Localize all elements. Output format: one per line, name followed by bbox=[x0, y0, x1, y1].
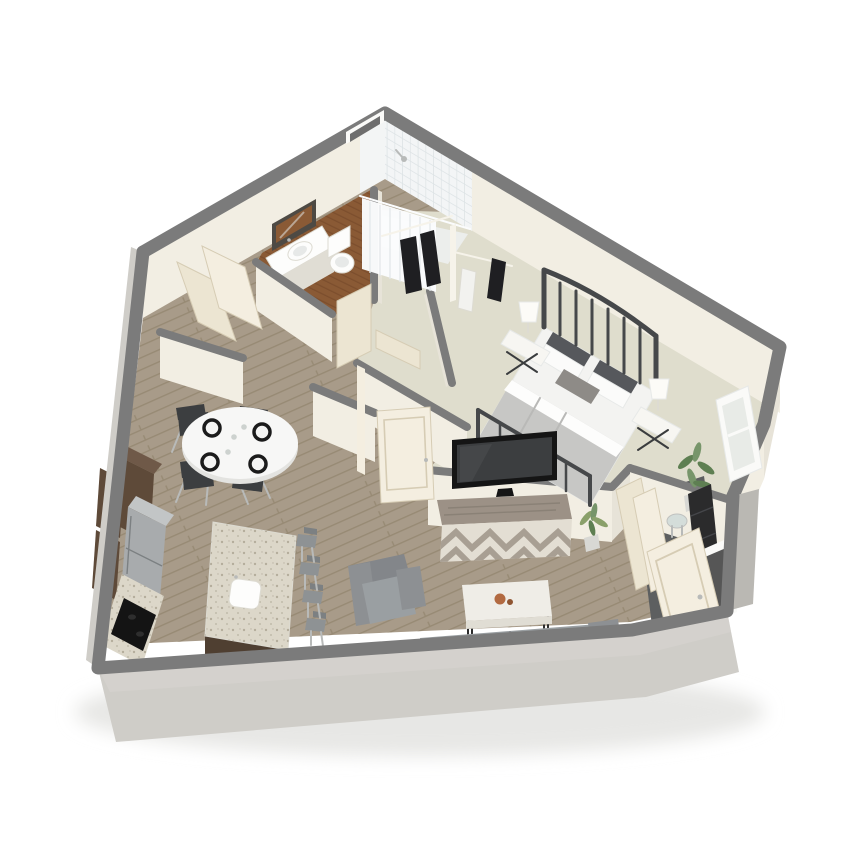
dining-table-top bbox=[182, 407, 298, 479]
island-sink bbox=[228, 578, 262, 610]
kitchen-island bbox=[205, 522, 296, 668]
floor-plan-render bbox=[0, 0, 844, 844]
decor-small bbox=[507, 599, 513, 605]
door-handle bbox=[698, 595, 703, 600]
media-dresser bbox=[437, 494, 574, 566]
closet-door-edge bbox=[357, 365, 365, 475]
vanity-faucet bbox=[287, 238, 291, 242]
decor-bowl bbox=[495, 594, 506, 605]
floor-plan-canvas bbox=[0, 0, 844, 844]
tv-stand bbox=[496, 488, 514, 497]
closet-divider bbox=[450, 224, 456, 302]
bedroom-door-leaf bbox=[377, 407, 434, 503]
island-faucet bbox=[234, 575, 238, 579]
